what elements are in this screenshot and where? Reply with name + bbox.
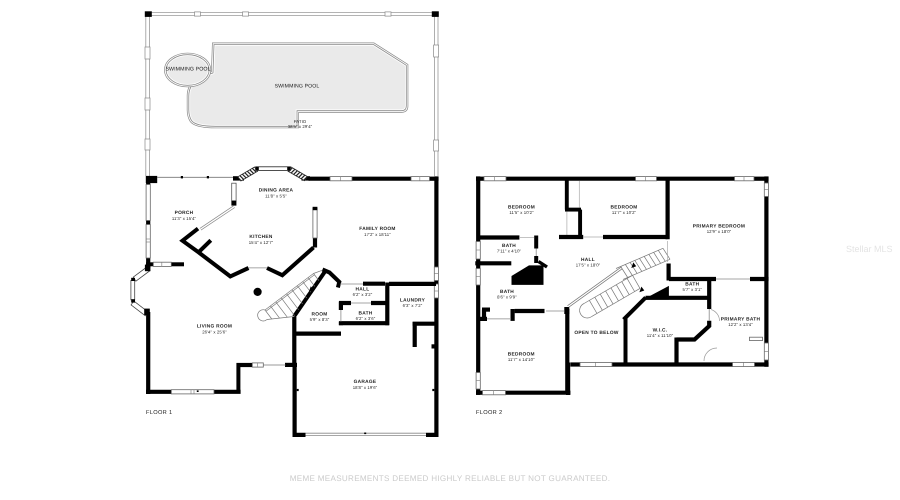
svg-text:OPEN TO BELOW: OPEN TO BELOW bbox=[574, 330, 619, 336]
svg-text:6'3" x 7'2": 6'3" x 7'2" bbox=[403, 303, 423, 308]
svg-text:5'9" x 8'3": 5'9" x 8'3" bbox=[310, 317, 330, 322]
svg-text:12'2" x 13'4": 12'2" x 13'4" bbox=[728, 322, 753, 327]
svg-text:SWIMMING POOL: SWIMMING POOL bbox=[165, 66, 210, 72]
svg-text:8'6" x 9'9": 8'6" x 9'9" bbox=[497, 295, 517, 300]
svg-text:15'4" x 12'7": 15'4" x 12'7" bbox=[249, 240, 274, 245]
svg-text:6'2" x 3'2": 6'2" x 3'2" bbox=[353, 292, 373, 297]
svg-text:FLOOR 1: FLOOR 1 bbox=[146, 410, 172, 416]
svg-text:5'7" x 3'1": 5'7" x 3'1" bbox=[682, 287, 702, 292]
svg-text:6'2" x 3'6": 6'2" x 3'6" bbox=[356, 316, 376, 321]
svg-text:11'7" x 10'2": 11'7" x 10'2" bbox=[612, 210, 637, 215]
svg-text:18'8" x 19'6": 18'8" x 19'6" bbox=[353, 385, 378, 390]
svg-text:Stellar MLS: Stellar MLS bbox=[846, 244, 893, 254]
svg-text:11'5" x 10'2": 11'5" x 10'2" bbox=[509, 210, 534, 215]
svg-text:26'4" x 25'6": 26'4" x 25'6" bbox=[202, 330, 227, 335]
svg-text:MEME MEASUREMENTS DEEMED HIGHL: MEME MEASUREMENTS DEEMED HIGHLY RELIABLE… bbox=[290, 474, 611, 483]
svg-text:SWIMMING POOL: SWIMMING POOL bbox=[275, 83, 320, 89]
svg-text:7'11" x 4'10": 7'11" x 4'10" bbox=[497, 249, 522, 254]
svg-text:11'4" x 11'10": 11'4" x 11'10" bbox=[647, 333, 674, 338]
svg-text:12'9" x 18'0": 12'9" x 18'0" bbox=[707, 229, 732, 234]
svg-text:11'3" x 15'4": 11'3" x 15'4" bbox=[172, 216, 197, 221]
svg-text:11'8" x 5'5": 11'8" x 5'5" bbox=[265, 194, 287, 199]
svg-text:17'5" x 18'0": 17'5" x 18'0" bbox=[576, 263, 601, 268]
svg-text:38'5" x 29'4": 38'5" x 29'4" bbox=[288, 124, 313, 129]
svg-text:11'7" x 14'10": 11'7" x 14'10" bbox=[508, 357, 535, 362]
svg-text:FLOOR 2: FLOOR 2 bbox=[476, 410, 502, 416]
svg-text:17'2" x 18'11": 17'2" x 18'11" bbox=[364, 232, 391, 237]
